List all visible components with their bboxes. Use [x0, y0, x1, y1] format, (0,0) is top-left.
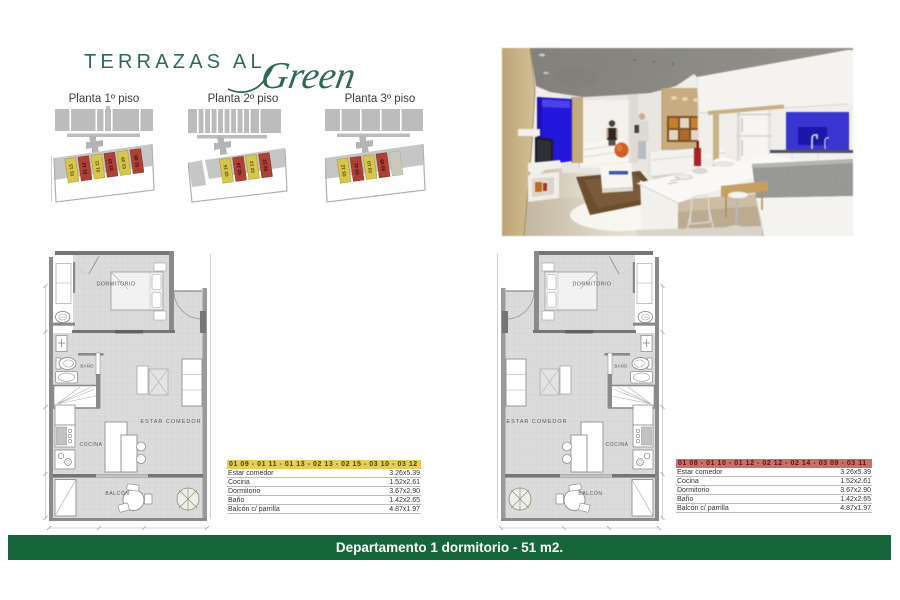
svg-text:DORMITORIO: DORMITORIO: [97, 282, 136, 288]
svg-text:Green: Green: [258, 55, 359, 97]
svg-text:DORMITORIO: DORMITORIO: [573, 282, 612, 288]
svg-text:COCINA: COCINA: [79, 442, 102, 448]
svg-text:BALCÓN: BALCÓN: [578, 490, 602, 497]
svg-text:BAÑO: BAÑO: [614, 364, 628, 369]
svg-text:COCINA: COCINA: [605, 442, 628, 448]
svg-text:BALCÓN: BALCÓN: [105, 490, 129, 497]
svg-text:ESTAR COMEDOR: ESTAR COMEDOR: [506, 419, 567, 425]
svg-text:BAÑO: BAÑO: [80, 364, 94, 369]
svg-text:ESTAR COMEDOR: ESTAR COMEDOR: [140, 419, 201, 425]
